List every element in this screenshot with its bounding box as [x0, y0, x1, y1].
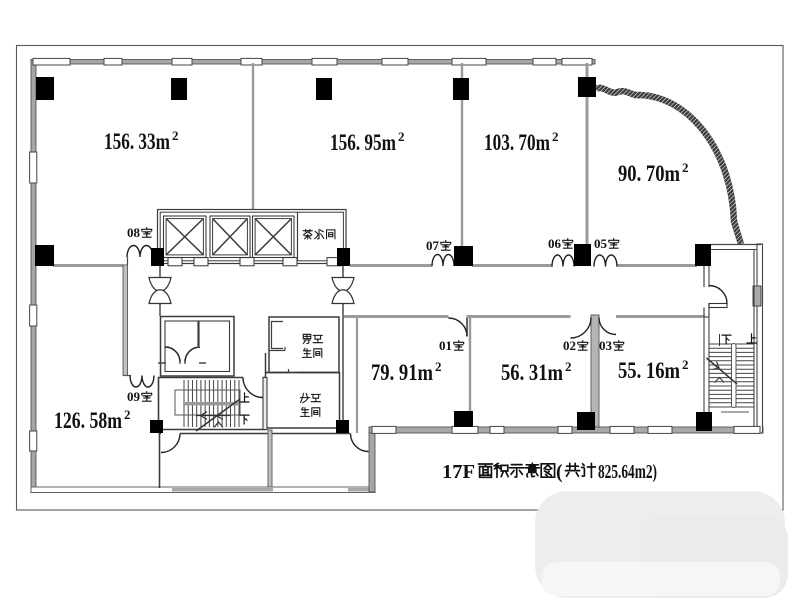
svg-text:08: 08 [127, 225, 141, 240]
svg-text:06: 06 [548, 236, 562, 251]
svg-text:56. 31m: 56. 31m [501, 360, 563, 385]
svg-text:2: 2 [552, 129, 559, 144]
svg-text:2: 2 [682, 357, 689, 372]
svg-text:(: ( [556, 461, 563, 483]
svg-text:156. 33m: 156. 33m [104, 129, 170, 154]
svg-text:17F: 17F [442, 461, 475, 483]
svg-text:03: 03 [599, 338, 613, 353]
svg-text:79. 91m: 79. 91m [371, 360, 433, 385]
svg-text:2: 2 [172, 128, 179, 143]
svg-text:2: 2 [124, 407, 131, 422]
svg-text:09: 09 [127, 389, 141, 404]
svg-text:2: 2 [565, 359, 572, 374]
svg-text:2: 2 [435, 359, 442, 374]
svg-text:103. 70m: 103. 70m [484, 130, 550, 155]
svg-text:05: 05 [594, 236, 608, 251]
svg-text:126. 58m: 126. 58m [54, 408, 122, 433]
svg-text:02: 02 [563, 338, 576, 353]
svg-text:07: 07 [426, 238, 440, 253]
svg-text:55. 16m: 55. 16m [618, 358, 680, 383]
svg-text:01: 01 [439, 338, 452, 353]
svg-text:156. 95m: 156. 95m [330, 130, 396, 155]
svg-text:90. 70m: 90. 70m [618, 161, 680, 186]
svg-text:2: 2 [398, 129, 405, 144]
svg-text:2: 2 [682, 160, 689, 175]
svg-text:825.64m2): 825.64m2) [598, 461, 657, 483]
